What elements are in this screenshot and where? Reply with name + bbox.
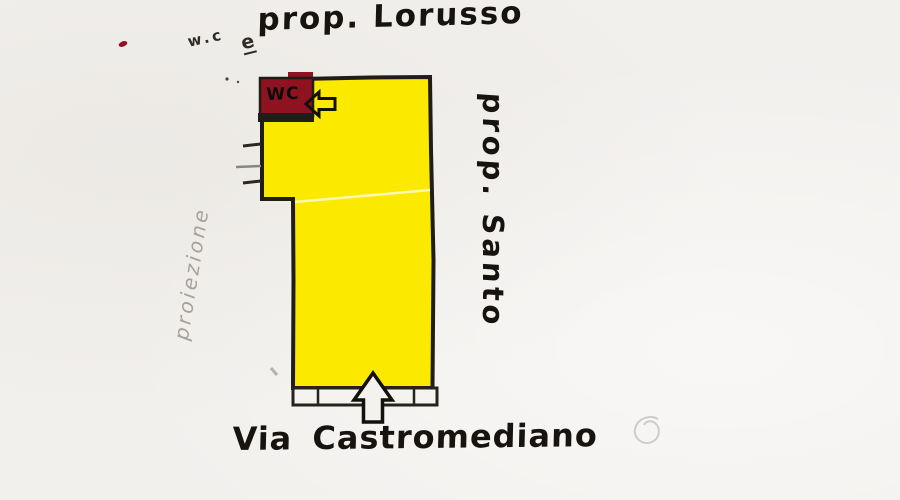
ink-speck-2 bbox=[237, 81, 239, 83]
ink-speck-1 bbox=[225, 77, 228, 80]
street-name-label: Via Castromediano bbox=[232, 416, 598, 458]
wall-tick-marks bbox=[236, 144, 261, 183]
red-ink-dot bbox=[118, 40, 128, 48]
pencil-loop-mark bbox=[635, 417, 659, 443]
right-neighbor-label: prop. Santo bbox=[476, 92, 510, 330]
pencil-dash-mark bbox=[271, 368, 277, 375]
building-outline bbox=[262, 77, 434, 388]
wc-room-label: WC bbox=[266, 84, 300, 105]
scanned-plan-sheet: prop. Lorusso w.c e WC prop. Santo proie… bbox=[0, 0, 900, 500]
